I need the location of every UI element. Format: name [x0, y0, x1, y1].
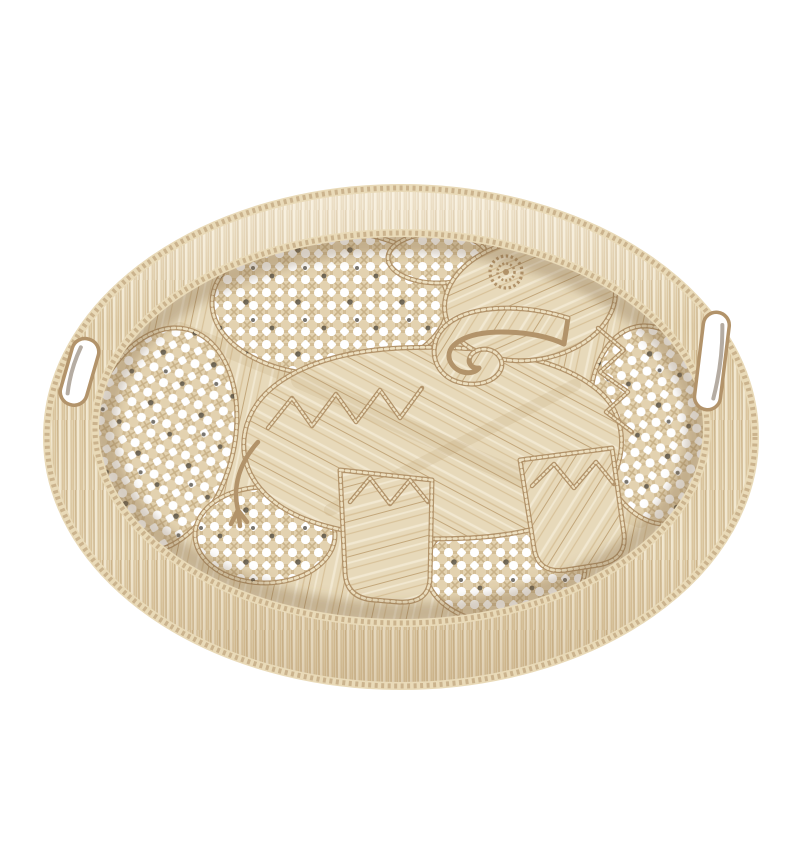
elephant-front-leg	[340, 470, 432, 602]
product-photo: Round handwoven natural raffia tray with…	[0, 0, 800, 865]
tray-graphic: Round handwoven natural raffia tray with…	[0, 0, 800, 865]
